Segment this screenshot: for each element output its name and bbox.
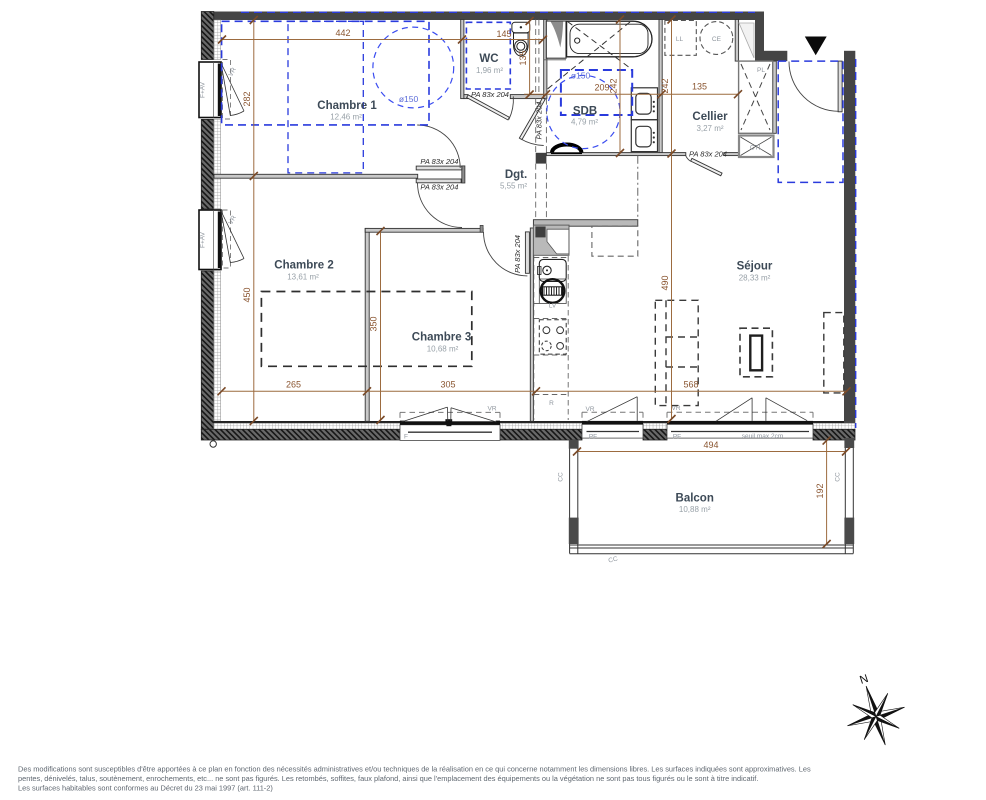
svg-text:VR: VR [585, 406, 594, 413]
svg-text:192: 192 [815, 483, 825, 498]
svg-text:265: 265 [286, 380, 301, 390]
svg-text:Dgt.: Dgt. [505, 169, 527, 181]
svg-text:ø150: ø150 [571, 71, 591, 81]
svg-text:PA 83x 204: PA 83x 204 [420, 157, 458, 166]
svg-text:242: 242 [609, 78, 619, 93]
svg-text:PA 83x 204: PA 83x 204 [420, 183, 458, 192]
svg-text:Balcon: Balcon [676, 493, 714, 505]
svg-text:SDB: SDB [573, 106, 597, 118]
svg-text:F+AV: F+AV [200, 81, 207, 98]
svg-text:VR: VR [487, 406, 496, 413]
svg-text:209: 209 [594, 83, 609, 93]
svg-text:PA 83x 204: PA 83x 204 [689, 150, 727, 159]
svg-text:PA 83x 204: PA 83x 204 [513, 235, 522, 273]
svg-text:CC: CC [558, 472, 565, 482]
svg-text:LL: LL [676, 36, 684, 43]
svg-text:450: 450 [242, 287, 252, 302]
svg-text:305: 305 [440, 380, 455, 390]
svg-text:ø150: ø150 [399, 94, 419, 104]
svg-text:Chambre 2: Chambre 2 [274, 260, 333, 272]
svg-text:PF: PF [673, 433, 681, 440]
svg-text:28,33 m²: 28,33 m² [739, 274, 771, 283]
svg-text:242: 242 [660, 78, 670, 93]
svg-text:135: 135 [518, 50, 528, 65]
svg-text:CE: CE [712, 36, 722, 43]
svg-text:Les surfaces habitables sont c: Les surfaces habitables sont conformes a… [18, 784, 273, 793]
svg-text:Cellier: Cellier [692, 111, 728, 123]
svg-text:350: 350 [369, 316, 379, 331]
svg-text:PA 83x 204: PA 83x 204 [471, 90, 509, 99]
svg-text:3,27 m²: 3,27 m² [696, 124, 723, 133]
svg-text:5,55 m²: 5,55 m² [500, 182, 527, 191]
svg-text:R: R [549, 400, 554, 407]
svg-text:13,61 m²: 13,61 m² [287, 273, 319, 282]
svg-text:PA 83x 204: PA 83x 204 [535, 102, 544, 140]
svg-text:F+AV: F+AV [200, 231, 207, 248]
svg-text:135: 135 [692, 82, 707, 92]
svg-text:494: 494 [703, 440, 718, 450]
svg-text:4,79 m²: 4,79 m² [571, 118, 598, 127]
svg-text:145: 145 [496, 29, 511, 39]
svg-text:568: 568 [683, 380, 698, 390]
svg-text:CC: CC [835, 472, 842, 482]
svg-text:12,46 m²: 12,46 m² [330, 113, 362, 122]
svg-text:pentes, dénivelés, talus, sout: pentes, dénivelés, talus, soutènement, e… [18, 774, 758, 783]
svg-text:PF: PF [589, 433, 597, 440]
svg-text:1,96 m²: 1,96 m² [476, 66, 503, 75]
svg-text:CTL: CTL [750, 145, 763, 152]
svg-text:Des modifications sont suscept: Des modifications sont susceptibles d'êt… [18, 765, 811, 774]
svg-text:F: F [404, 434, 408, 441]
svg-text:Séjour: Séjour [737, 261, 773, 273]
svg-text:WC: WC [479, 53, 498, 65]
svg-text:Chambre 1: Chambre 1 [317, 100, 377, 112]
svg-text:10,88 m²: 10,88 m² [679, 505, 711, 514]
svg-text:282: 282 [242, 91, 252, 106]
svg-text:10,68 m²: 10,68 m² [427, 345, 459, 354]
svg-text:442: 442 [335, 28, 350, 38]
svg-text:PL: PL [757, 67, 765, 74]
svg-text:Chambre 3: Chambre 3 [412, 332, 471, 344]
svg-text:490: 490 [660, 275, 670, 290]
svg-text:seuil max 2cm: seuil max 2cm [742, 433, 784, 440]
